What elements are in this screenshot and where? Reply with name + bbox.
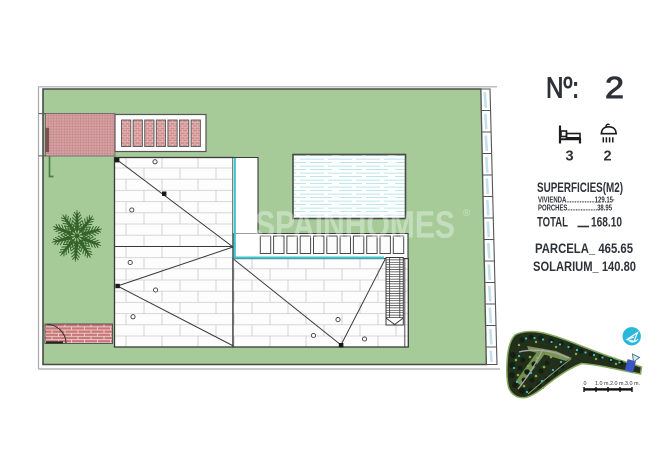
svg-text:2: 2 [605, 70, 624, 105]
svg-text:SUPERFICIES(M2): SUPERFICIES(M2) [537, 179, 623, 195]
svg-text:SOLARIUM_ 140.80: SOLARIUM_ 140.80 [533, 259, 636, 274]
svg-text:SPAINHOMES: SPAINHOMES [255, 205, 455, 247]
svg-text:2.0 m.: 2.0 m. [610, 381, 625, 387]
svg-text:PARCELA_ 465.65: PARCELA_ 465.65 [535, 241, 633, 256]
svg-text:®: ® [463, 208, 471, 219]
svg-text:PORCHES..................38.95: PORCHES..................38.95 [538, 204, 612, 213]
svg-text:1.0 m.: 1.0 m. [595, 381, 610, 387]
svg-text:168.10: 168.10 [591, 214, 622, 230]
svg-text:3: 3 [566, 149, 574, 165]
svg-text:Nº:: Nº: [546, 73, 579, 105]
svg-text:2: 2 [604, 149, 612, 165]
svg-text:3.0 m.: 3.0 m. [625, 381, 640, 387]
svg-text:TOTAL: TOTAL [537, 214, 568, 230]
svg-text:0: 0 [584, 381, 587, 387]
